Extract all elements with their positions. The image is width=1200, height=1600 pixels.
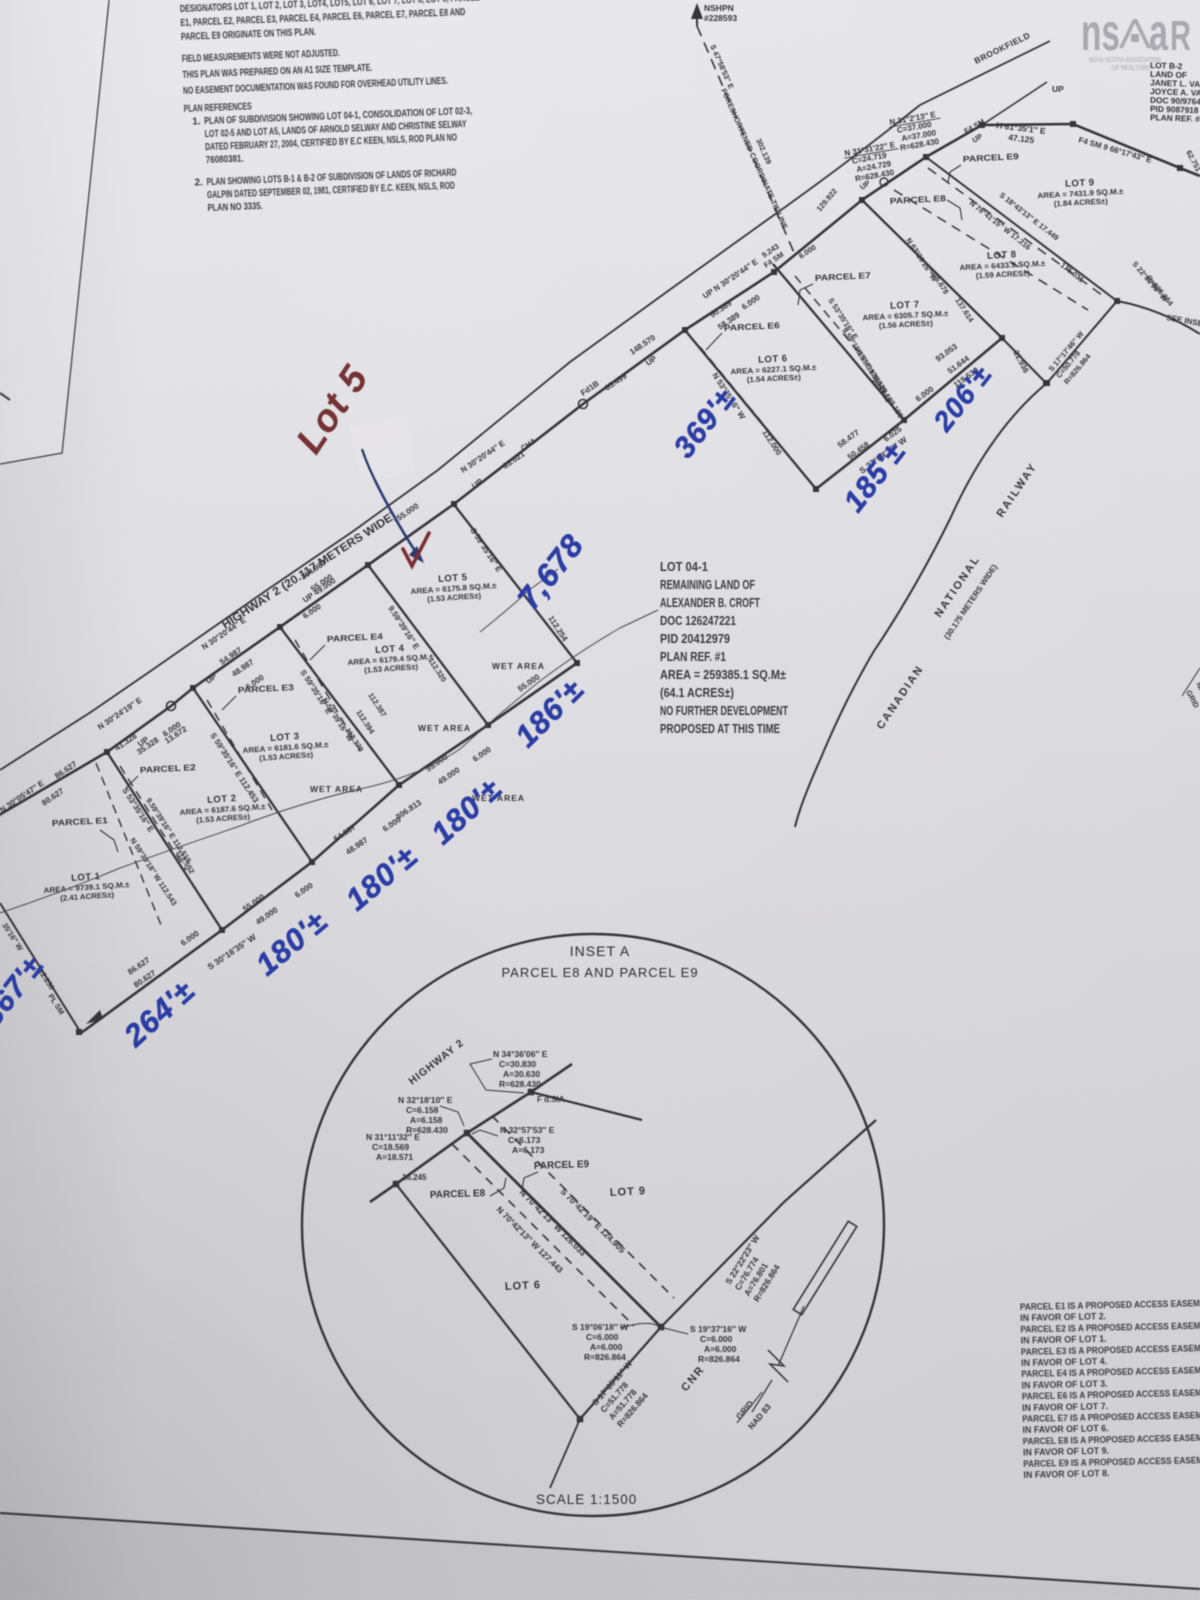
svg-text:a: a: [1149, 4, 1169, 62]
svg-text:2.: 2.: [194, 177, 203, 188]
svg-text:C=6.173: C=6.173: [508, 1135, 541, 1145]
svg-text:IN FAVOR OF LOT 4.: IN FAVOR OF LOT 4.: [1021, 1356, 1107, 1368]
svg-text:C=6.158: C=6.158: [406, 1105, 439, 1115]
svg-text:PROPOSED AT THIS TIME: PROPOSED AT THIS TIME: [660, 722, 780, 736]
svg-text:N 32°57′53″ E: N 32°57′53″ E: [500, 1125, 555, 1135]
svg-text:S 19°37′16″ W: S 19°37′16″ W: [690, 1324, 747, 1334]
svg-text:PARCEL E8: PARCEL E8: [430, 1188, 486, 1201]
svg-text:INSET A: INSET A: [570, 943, 630, 959]
svg-text:N 31°11′32″ E: N 31°11′32″ E: [366, 1132, 420, 1142]
svg-text:WET AREA: WET AREA: [418, 723, 471, 733]
svg-text:DOC 126247221: DOC 126247221: [660, 614, 736, 628]
svg-text:PID 20412979: PID 20412979: [660, 632, 730, 646]
svg-text:C=6.000: C=6.000: [586, 1332, 619, 1342]
svg-text:N 32°18′10″ E: N 32°18′10″ E: [398, 1095, 453, 1105]
svg-text:ALEXANDER B. CROFT: ALEXANDER B. CROFT: [660, 596, 760, 610]
svg-text:(64.1 ACRES±): (64.1 ACRES±): [660, 686, 734, 700]
svg-text:REMAINING LAND OF: REMAINING LAND OF: [660, 578, 755, 592]
svg-text:R=826.864: R=826.864: [584, 1352, 626, 1362]
svg-text:LOT 6: LOT 6: [505, 1279, 542, 1293]
svg-text:A=6.158: A=6.158: [410, 1115, 443, 1125]
svg-text:IN FAVOR OF LOT 7.: IN FAVOR OF LOT 7.: [1022, 1401, 1108, 1413]
svg-text:LOT 04-1: LOT 04-1: [660, 560, 708, 574]
svg-text:PLAN REF. #1: PLAN REF. #1: [660, 650, 726, 664]
svg-text:AREA = 259385.1 SQ.M±: AREA = 259385.1 SQ.M±: [660, 668, 786, 682]
svg-text:A=6.173: A=6.173: [512, 1145, 545, 1155]
svg-text:IN FAVOR OF LOT 9.: IN FAVOR OF LOT 9.: [1023, 1446, 1109, 1458]
svg-text:1.: 1.: [192, 116, 201, 127]
svg-text:R: R: [1170, 12, 1191, 59]
svg-text:A=18.571: A=18.571: [376, 1152, 413, 1162]
svg-text:IN FAVOR OF LOT 1.: IN FAVOR OF LOT 1.: [1021, 1334, 1107, 1346]
svg-text:S 19°06′18″ W: S 19°06′18″ W: [572, 1322, 629, 1332]
svg-text:C=30.830: C=30.830: [499, 1059, 536, 1069]
svg-text:76080381.: 76080381.: [206, 154, 245, 166]
svg-text:N 34°36′06″ E: N 34°36′06″ E: [493, 1049, 548, 1059]
svg-text:PLAN NO 3335.: PLAN NO 3335.: [207, 201, 263, 214]
svg-text:NO FURTHER DEVELOPMENT: NO FURTHER DEVELOPMENT: [660, 704, 788, 718]
svg-text:A=6.000: A=6.000: [590, 1342, 623, 1352]
svg-text:R=826.864: R=826.864: [698, 1354, 740, 1364]
svg-text:IN FAVOR OF LOT 3.: IN FAVOR OF LOT 3.: [1021, 1379, 1107, 1391]
svg-text:C=6.000: C=6.000: [700, 1334, 733, 1344]
svg-text:F d.SIA: F d.SIA: [537, 1095, 565, 1104]
svg-text:PARCEL E8 AND PARCEL E9: PARCEL E8 AND PARCEL E9: [501, 965, 698, 980]
svg-text:16.245: 16.245: [402, 1173, 427, 1182]
svg-text:WET AREA: WET AREA: [310, 784, 363, 794]
svg-text:OF REALTORS: OF REALTORS: [1112, 65, 1150, 72]
svg-text:C=18.569: C=18.569: [372, 1142, 409, 1152]
svg-text:A=6.000: A=6.000: [704, 1344, 737, 1354]
svg-text:WET AREA: WET AREA: [492, 661, 545, 671]
svg-text:PARCEL E9: PARCEL E9: [534, 1159, 590, 1172]
svg-text:NSHPN: NSHPN: [704, 3, 734, 13]
svg-text:ns: ns: [1081, 4, 1120, 62]
svg-text:A=30.630: A=30.630: [503, 1069, 540, 1079]
svg-text:IN FAVOR OF LOT 6.: IN FAVOR OF LOT 6.: [1022, 1423, 1108, 1435]
svg-text:#228593: #228593: [704, 13, 737, 23]
svg-text:UP: UP: [1052, 84, 1064, 94]
svg-text:R=628.430: R=628.430: [499, 1079, 541, 1089]
svg-text:LOT 9: LOT 9: [610, 1185, 647, 1199]
svg-text:PLAN REF. #2: PLAN REF. #2: [1150, 112, 1200, 124]
svg-text:IN FAVOR OF LOT 2.: IN FAVOR OF LOT 2.: [1020, 1311, 1106, 1323]
svg-text:SCALE 1:1500: SCALE 1:1500: [536, 1492, 637, 1507]
svg-text:IN FAVOR OF LOT 8.: IN FAVOR OF LOT 8.: [1023, 1468, 1109, 1480]
